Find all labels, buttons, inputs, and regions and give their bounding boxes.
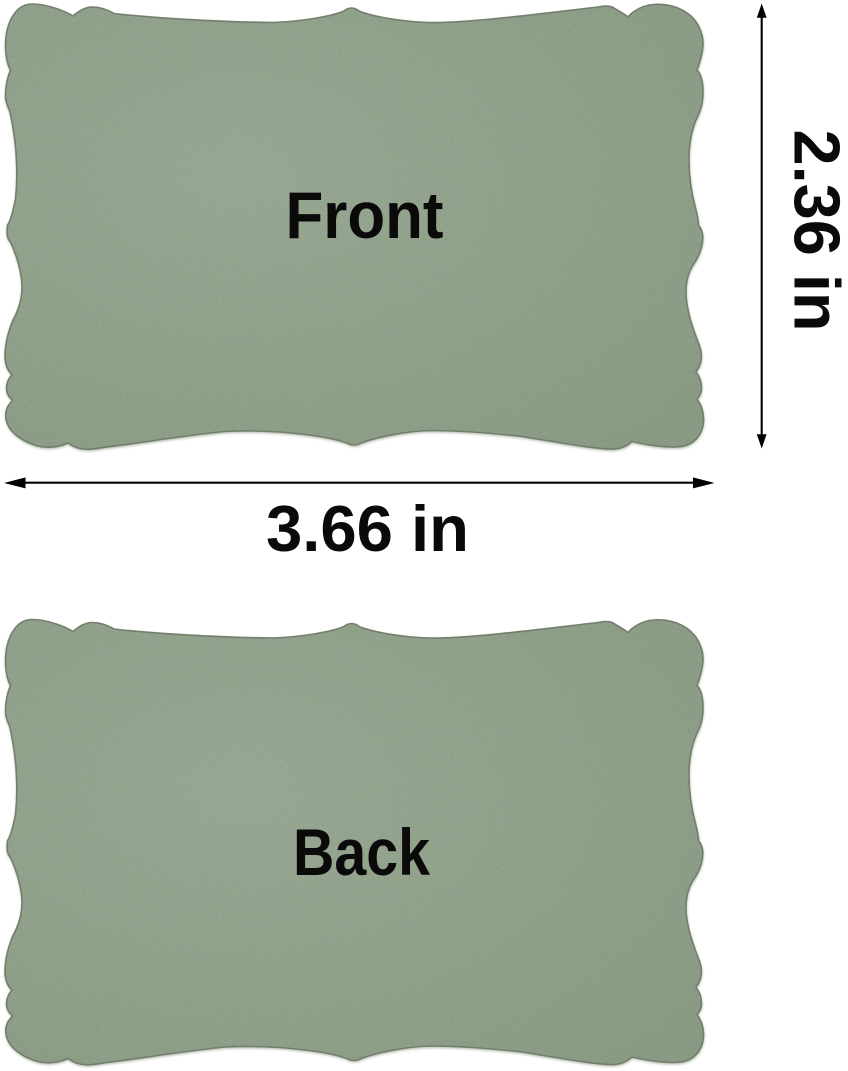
svg-text:Front: Front [286, 178, 444, 252]
svg-text:2.36 in: 2.36 in [781, 130, 848, 332]
svg-text:Back: Back [293, 815, 430, 889]
svg-text:3.66 in: 3.66 in [266, 492, 469, 565]
